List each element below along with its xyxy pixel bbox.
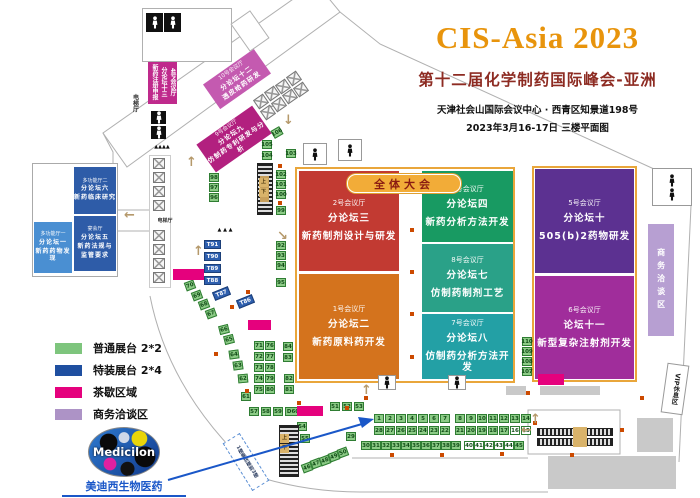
floor-plan: CIS-Asia 2023 第十二届化学制药国际峰会-亚洲 天津社会山国际会议中…: [0, 0, 700, 498]
marker-dot: [278, 164, 282, 168]
booth-12: 12: [499, 414, 509, 423]
booth-82: 82: [284, 374, 294, 383]
legend: 普通展台 2*2特装展台 2*4茶歇区域商务洽谈区: [55, 337, 162, 425]
marker-dot: [297, 401, 301, 405]
hall-8-line: 分论坛七: [446, 271, 488, 282]
booth-55: 55: [300, 434, 310, 443]
stair-marks: ▲▲▲▲: [145, 144, 179, 152]
tea-break-area: [173, 269, 204, 280]
booth-53: 53: [354, 402, 364, 411]
hall-7: 7号会议厅分论坛八仿制药分析方法开发: [422, 314, 513, 379]
person-icon: [311, 148, 319, 161]
hall-4-line: 新药注册申报: [150, 60, 159, 104]
booth-59: 59: [273, 407, 283, 416]
skylight-box: [153, 200, 165, 211]
booth-78: 78: [265, 363, 275, 372]
hall-6-line: 新型复杂注射剂开发: [537, 339, 632, 350]
booth-77: 77: [265, 352, 275, 361]
marker-dot: [410, 312, 414, 316]
escalator-note: 1楼乘扶梯到3楼: [223, 433, 270, 491]
marker-dot: [500, 452, 504, 456]
booth-72: 72: [254, 352, 264, 361]
booth-66: 66: [218, 324, 230, 335]
vip-lounge: VIP休息区: [661, 363, 690, 416]
booth-100: 100: [276, 190, 286, 199]
marker-dot: [214, 352, 218, 356]
hall-banquet: 宴会厅分论坛五新药法规与监管要求: [74, 216, 116, 271]
elevator-icon: [338, 139, 362, 161]
hall-5-line: 分论坛十: [563, 214, 605, 225]
hall-mf2-line: 分论坛六: [81, 186, 109, 193]
booth-110: 110: [522, 337, 532, 346]
direction-arrow: ←: [521, 424, 532, 437]
gray-block: [637, 418, 673, 452]
booth-74: 74: [254, 374, 264, 383]
hall-1: 1号会议厅分论坛二新药原料药开发: [299, 274, 399, 379]
legend-swatch: [55, 409, 82, 420]
booth-37: 37: [431, 441, 441, 450]
person-icon: [668, 174, 676, 187]
marker-dot: [278, 201, 282, 205]
hall-1-line: 分论坛二: [328, 320, 370, 331]
booth-6: 6: [429, 414, 439, 423]
elevator-icon: [652, 168, 692, 206]
booth-7: 7: [440, 414, 450, 423]
hall-banquet-line: 分论坛五: [81, 235, 109, 242]
booth-34: 34: [401, 441, 411, 450]
elevator-icon: [146, 13, 163, 32]
page-subtitle: 第十二届化学制药国际峰会-亚洲: [385, 68, 690, 90]
esc-down-label: 下: [259, 188, 268, 197]
booth-67: 67: [205, 308, 217, 320]
hall-7-line: 7号会议厅: [451, 319, 483, 327]
hall-7-line: 分论坛八: [446, 334, 488, 345]
person-icon: [668, 188, 676, 201]
legend-swatch: [55, 365, 82, 376]
legend-label: 茶歇区域: [93, 384, 137, 400]
person-icon: [169, 16, 177, 29]
page-title: CIS-Asia 2023: [385, 20, 690, 56]
medicilon-logo-text: Medicilon: [93, 445, 155, 459]
booth-25: 25: [407, 426, 417, 435]
booth-42: 42: [484, 441, 494, 450]
marker-dot: [230, 305, 234, 309]
hall-3-line: 新药分析方法开发: [425, 218, 509, 229]
sponsor-name: 美迪西生物医药: [62, 478, 186, 497]
hall-8-line: 仿制药制剂工艺: [431, 289, 505, 300]
direction-arrow: ↓: [283, 114, 294, 127]
booth-26: 26: [396, 426, 406, 435]
esc-up-label: 上: [259, 178, 268, 187]
booth-36: 36: [421, 441, 431, 450]
hall-7-line: 仿制药分析方法开发: [422, 352, 513, 374]
marker-dot: [570, 453, 574, 457]
hall-2-line: 分论坛三: [328, 214, 370, 225]
person-icon: [346, 144, 354, 157]
hall-banquet-line: 监管要求: [81, 253, 109, 260]
elevator-icon: [164, 13, 181, 32]
date-and-floor: 2023年3月16-17日 三楼平面图: [385, 120, 690, 134]
booth-76: 76: [265, 341, 275, 350]
booth-96: 96: [209, 193, 219, 202]
legend-swatch: [55, 387, 82, 398]
booth-93: 93: [276, 251, 286, 260]
booth-97: 97: [209, 183, 219, 192]
booth-8: 8: [455, 414, 465, 423]
hall-1-line: 新药原料药开发: [312, 338, 386, 349]
booth-21: 21: [455, 426, 465, 435]
direction-arrow: ↘: [277, 230, 288, 243]
hall-banquet-line: 宴会厅: [87, 227, 102, 233]
marker-dot: [390, 453, 394, 457]
direction-arrow: ↑: [193, 245, 204, 258]
hall-1-line: 1号会议厅: [333, 305, 365, 313]
legend-label: 商务洽谈区: [93, 406, 148, 422]
booth-83: 83: [283, 353, 293, 362]
booth-58: 58: [261, 407, 271, 416]
medicilon-logo: Medicilon: [88, 427, 160, 477]
booth-17: 17: [499, 426, 509, 435]
booth-35: 35: [411, 441, 421, 450]
booth-70: 70: [184, 280, 196, 292]
elevator-icon: [378, 375, 396, 390]
hall-2-line: 2号会议厅: [333, 199, 365, 207]
booth-63: 63: [232, 360, 243, 370]
escalator-center: [573, 427, 587, 447]
stair-marks: ▲ ▲ ▲: [211, 227, 239, 235]
booth-T90: T90: [204, 252, 221, 261]
booth-T88: T88: [204, 276, 221, 285]
booth-38: 38: [441, 441, 451, 450]
elevator-icon: [151, 111, 166, 124]
hall-mf1-line: 新药药物发现: [34, 249, 72, 263]
booth-27: 27: [385, 426, 395, 435]
booth-19: 19: [477, 426, 487, 435]
booth-5: 5: [418, 414, 428, 423]
elevator-icon: [151, 126, 166, 139]
booth-32: 32: [381, 441, 391, 450]
hall-6-line: 6号会议厅: [568, 306, 600, 314]
booth-50: 50: [337, 447, 349, 459]
booth-39: 39: [451, 441, 461, 450]
booth-41: 41: [474, 441, 484, 450]
hall-mf2-line: 多功能厅二: [82, 179, 107, 185]
booth-57: 57: [249, 407, 259, 416]
booth-31: 31: [371, 441, 381, 450]
booth-13: 13: [510, 414, 520, 423]
booth-45: 45: [514, 441, 524, 450]
booth-18: 18: [488, 426, 498, 435]
hall-6-line: 论坛十一: [563, 321, 605, 332]
tea-break-area: [538, 374, 564, 385]
booth-24: 24: [418, 426, 428, 435]
booth-44: 44: [504, 441, 514, 450]
skylight-box: [153, 186, 165, 197]
person-icon: [155, 111, 163, 124]
gray-block: [540, 386, 600, 395]
elevator-icon: [303, 143, 327, 165]
marker-dot: [440, 453, 444, 457]
hall-5-line: 505(b)2药物研发: [539, 232, 630, 243]
legend-row-1: 特装展台 2*4: [55, 359, 162, 381]
hall-8: 8号会议厅分论坛七仿制药制剂工艺: [422, 244, 513, 312]
elevator-hall-label: 电梯厅: [129, 90, 139, 116]
marker-dot: [245, 389, 249, 393]
booth-108: 108: [522, 357, 532, 366]
skylight-box: [153, 272, 165, 283]
hall-mf1: 多功能厅一分论坛一新药药物发现: [34, 222, 72, 273]
marker-dot: [345, 406, 349, 410]
booth-109: 109: [522, 347, 532, 356]
booth-30: 30: [361, 441, 371, 450]
gray-block: [548, 456, 676, 489]
booth-102: 102: [276, 170, 286, 179]
booth-94: 94: [276, 261, 286, 270]
booth-16: 16: [510, 426, 520, 435]
skylight-box: [153, 158, 165, 169]
booth-106: 106: [270, 126, 283, 139]
booth-64: 64: [228, 349, 239, 359]
person-icon: [383, 376, 391, 389]
esc-up-label: 上: [280, 434, 289, 443]
booth-75: 75: [254, 385, 264, 394]
hall-mf1-line: 分论坛一: [39, 240, 67, 247]
booth-107: 107: [522, 367, 532, 376]
booth-105: 105: [262, 140, 272, 149]
booth-65: 65: [223, 334, 235, 345]
tea-break-area: [297, 406, 323, 416]
direction-arrow: ↑: [361, 384, 372, 397]
legend-swatch: [55, 343, 82, 354]
hall-6: 6号会议厅论坛十一新型复杂注射剂开发: [535, 276, 634, 379]
direction-arrow: ←: [124, 209, 135, 222]
booth-98: 98: [209, 173, 219, 182]
hall-8-line: 8号会议厅: [451, 256, 483, 264]
booth-1: 1: [374, 414, 384, 423]
hall-3-line: 分论坛四: [446, 200, 488, 211]
business-zone: 商务洽谈区: [648, 224, 674, 336]
booth-T89: T89: [204, 264, 221, 273]
plenary-banner: 全体大会: [347, 174, 461, 193]
hall-banquet-line: 新药法规与: [77, 244, 112, 251]
hall-4-line: 4号会议厅: [168, 60, 177, 104]
hall-mf1-line: 多功能厅一: [40, 232, 65, 238]
hall-4-line: 分论坛十三: [159, 60, 168, 104]
booth-9: 9: [466, 414, 476, 423]
person-icon: [155, 126, 163, 139]
hall-4: 4号会议厅分论坛十三新药注册申报: [148, 57, 177, 104]
booth-33: 33: [391, 441, 401, 450]
skylight-box: [153, 172, 165, 183]
booth-29: 29: [346, 432, 356, 441]
venue-address: 天津社会山国际会议中心 · 西青区知景道198号: [385, 102, 690, 116]
hall-5-line: 5号会议厅: [568, 199, 600, 207]
marker-dot: [526, 391, 530, 395]
booth-23: 23: [429, 426, 439, 435]
booth-80: 80: [265, 385, 275, 394]
marker-dot: [410, 355, 414, 359]
person-icon: [151, 16, 159, 29]
booth-62: 62: [238, 374, 249, 384]
hall-mf2: 多功能厅二分论坛六新药临床研究: [74, 167, 116, 214]
booth-10: 10: [477, 414, 487, 423]
booth-40: 40: [464, 441, 474, 450]
booth-51: 51: [330, 402, 340, 411]
booth-99: 99: [276, 206, 286, 215]
marker-dot: [410, 228, 414, 232]
person-icon: [453, 376, 461, 389]
booth-95: 95: [276, 278, 286, 287]
booth-101: 101: [276, 180, 286, 189]
marker-dot: [640, 396, 644, 400]
booth-T91: T91: [204, 240, 221, 249]
booth-104: 104: [262, 151, 272, 160]
booth-2: 2: [385, 414, 395, 423]
booth-61: 61: [241, 392, 251, 401]
hall-mf2-line: 新药临床研究: [74, 195, 116, 202]
marker-dot: [410, 270, 414, 274]
booth-3: 3: [396, 414, 406, 423]
elevator-hall-label: 电梯厅: [155, 218, 175, 225]
booth-84: 84: [283, 342, 293, 351]
direction-arrow: ↑: [186, 156, 197, 169]
booth-20: 20: [466, 426, 476, 435]
legend-row-2: 茶歇区域: [55, 381, 162, 403]
booth-4: 4: [407, 414, 417, 423]
marker-dot: [620, 428, 624, 432]
booth-103: 103: [286, 149, 296, 158]
skylight-box: [153, 244, 165, 255]
booth-11: 11: [488, 414, 498, 423]
marker-dot: [246, 290, 250, 294]
stair-box: [230, 10, 269, 52]
header-block: CIS-Asia 2023 第十二届化学制药国际峰会-亚洲 天津社会山国际会议中…: [385, 20, 690, 134]
gray-block: [506, 386, 526, 395]
esc-down-label: 下: [280, 444, 289, 453]
legend-row-0: 普通展台 2*2: [55, 337, 162, 359]
skylight-box: [153, 258, 165, 269]
elevator-icon: [448, 375, 466, 390]
tea-break-area: [248, 320, 271, 330]
booth-73: 73: [254, 363, 264, 372]
legend-label: 特装展台 2*4: [93, 362, 162, 378]
booth-71: 71: [254, 341, 264, 350]
legend-label: 普通展台 2*2: [93, 340, 162, 356]
hall-5: 5号会议厅分论坛十505(b)2药物研发: [535, 169, 634, 273]
booth-T86: T86: [236, 294, 255, 309]
booth-28: 28: [374, 426, 384, 435]
booth-79: 79: [265, 374, 275, 383]
booth-81: 81: [284, 385, 294, 394]
booth-T87: T87: [212, 286, 231, 301]
booth-43: 43: [494, 441, 504, 450]
legend-row-3: 商务洽谈区: [55, 403, 162, 425]
hall-2-line: 新药制剂设计与研发: [302, 232, 397, 243]
skylight-box: [153, 230, 165, 241]
booth-22: 22: [440, 426, 450, 435]
